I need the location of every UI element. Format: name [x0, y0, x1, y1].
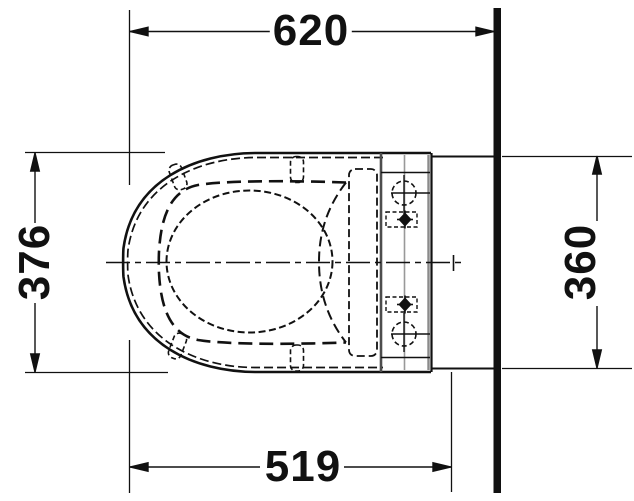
arrowhead-620-left [130, 27, 148, 36]
arrowhead-620-right [476, 27, 494, 36]
wall-section-line [494, 8, 502, 493]
bolt-symbol-bottom [397, 296, 413, 314]
fixing-holes [391, 175, 430, 352]
dimension-lines [31, 27, 602, 471]
extension-lines [25, 10, 632, 493]
bumper-bottom-left [167, 332, 188, 361]
arrowhead-376-bottom [31, 354, 40, 372]
arrowhead-519-left [130, 463, 148, 472]
dimension-label-376: 376 [10, 224, 60, 300]
arrowhead-360-top [593, 156, 602, 174]
toilet-top-view-drawing [0, 0, 634, 501]
dimension-label-519: 519 [262, 445, 344, 489]
bolt-symbol-top [397, 211, 413, 229]
arrowhead-360-bottom [593, 350, 602, 368]
technical-drawing-canvas: 620 519 376 360 [0, 0, 634, 501]
arrowhead-376-top [31, 153, 40, 171]
dimension-label-620: 620 [270, 9, 352, 53]
bumper-top-middle [291, 157, 304, 183]
dimension-label-360: 360 [556, 224, 606, 300]
bowl-opening-outline [167, 191, 333, 333]
arrowhead-519-right [433, 463, 451, 472]
